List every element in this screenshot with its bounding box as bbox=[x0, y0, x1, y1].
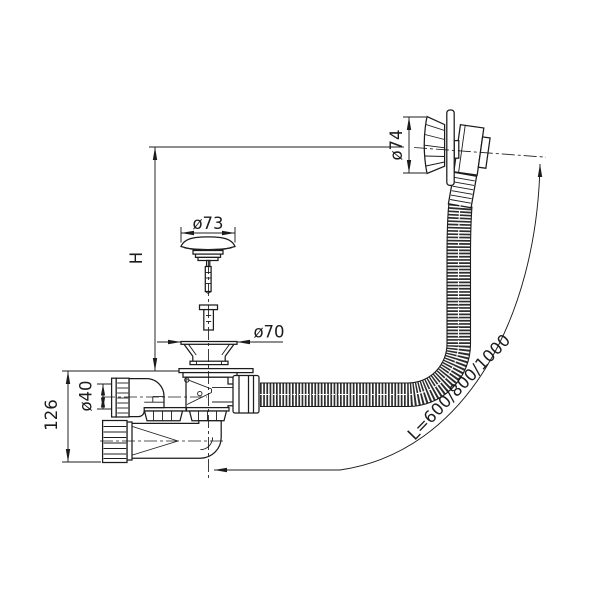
hose-length-label: L=600/800/1000 bbox=[404, 331, 514, 444]
plug-diameter-label: ø73 bbox=[192, 214, 223, 233]
overflow-flange-disc bbox=[447, 110, 454, 185]
inlet-diameter-label: ø40 bbox=[77, 380, 96, 411]
hose-compression-nut bbox=[233, 376, 259, 414]
lock-nuts bbox=[142, 408, 230, 421]
bottom-outlet-pipe bbox=[103, 421, 222, 463]
trap-height-label: 126 bbox=[42, 399, 61, 431]
dimension-overflow-diameter-74 bbox=[403, 117, 426, 173]
h-dimension-label: H bbox=[127, 252, 146, 264]
strainer-tailpiece bbox=[181, 342, 237, 365]
technical-drawing: H 126 ø40 ø73 ø70 ø74 L=600/800/1000 bbox=[0, 0, 600, 600]
overflow-diameter-label: ø74 bbox=[387, 129, 406, 160]
strainer-diameter-label: ø70 bbox=[253, 323, 284, 342]
technical-drawing-page: H 126 ø40 ø73 ø70 ø74 L=600/800/1000 bbox=[0, 0, 600, 600]
dimension-hose-length bbox=[214, 164, 542, 472]
drain-plug-cap bbox=[181, 237, 235, 261]
flexible-corrugated-hose bbox=[260, 205, 472, 407]
overflow-head-assembly bbox=[424, 110, 491, 208]
